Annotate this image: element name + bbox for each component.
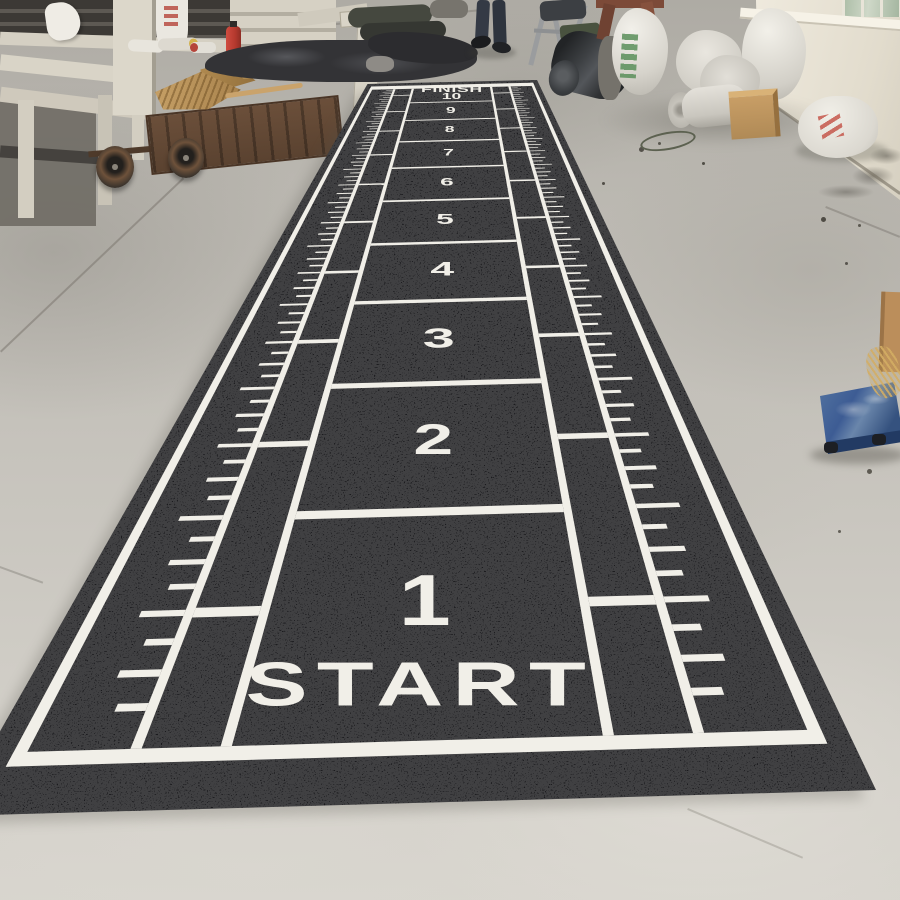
mat-finish-label: FINISH (421, 85, 483, 94)
warehouse-scene: 12345678910STARTFINISH (0, 0, 900, 900)
mat-number: 4 (430, 258, 454, 280)
mat-number: 8 (445, 125, 455, 134)
mat-number: 3 (423, 322, 455, 353)
mat-start-label: START (246, 649, 595, 719)
mat-number: 6 (440, 176, 454, 188)
mat-number: 2 (413, 416, 453, 463)
track-mat: 12345678910STARTFINISH (0, 0, 900, 900)
mat-number: 5 (436, 212, 454, 228)
mat-number: 9 (446, 106, 456, 115)
mat-number: 1 (399, 559, 451, 640)
mat-number: 7 (443, 148, 454, 158)
